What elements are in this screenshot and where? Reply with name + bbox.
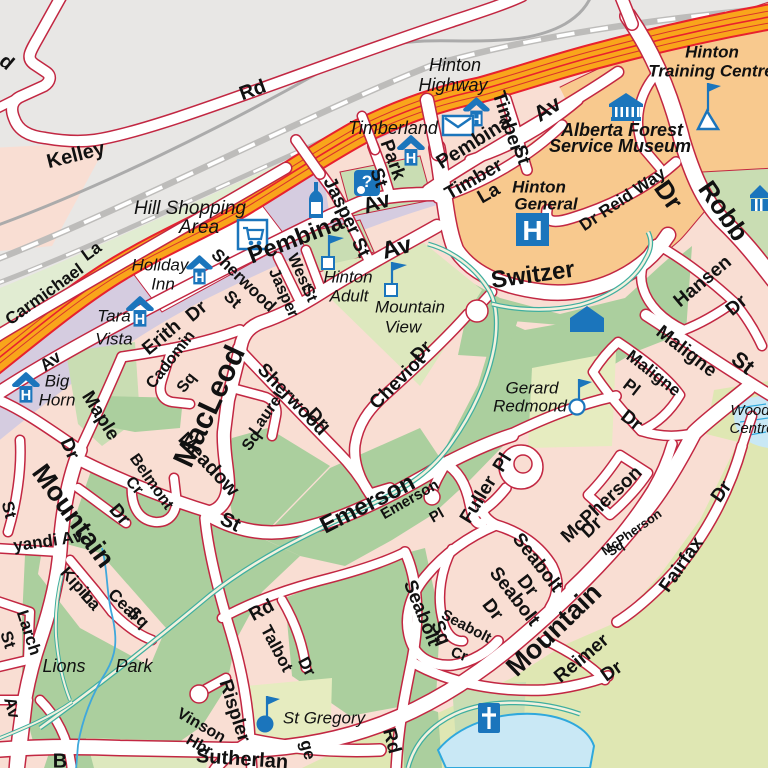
svg-text:Big: Big	[45, 371, 70, 390]
svg-text:H: H	[135, 312, 146, 328]
svg-text:Park: Park	[115, 656, 153, 676]
svg-text:Vista: Vista	[95, 329, 133, 348]
svg-text:H: H	[21, 388, 32, 404]
svg-text:H: H	[522, 215, 542, 246]
svg-text:Hinton: Hinton	[685, 42, 739, 61]
svg-text:Centre: Centre	[729, 420, 768, 437]
svg-text:Hill Shopping: Hill Shopping	[134, 198, 246, 219]
svg-text:Gerard: Gerard	[506, 378, 559, 397]
svg-text:H: H	[194, 269, 204, 285]
svg-text:Hinton: Hinton	[429, 55, 481, 75]
svg-text:Service Museum: Service Museum	[549, 136, 691, 156]
svg-text:Horn: Horn	[39, 390, 76, 409]
svg-text:Lions: Lions	[42, 656, 85, 676]
svg-text:Highway: Highway	[418, 75, 488, 95]
svg-text:Inn: Inn	[151, 274, 175, 293]
svg-text:H: H	[406, 151, 417, 167]
svg-text:General: General	[514, 194, 579, 213]
svg-text:Hinton: Hinton	[323, 267, 372, 286]
svg-text:Area: Area	[178, 217, 219, 238]
svg-text:B: B	[53, 750, 67, 768]
svg-text:Tara: Tara	[97, 306, 130, 325]
svg-text:Adult: Adult	[329, 286, 370, 305]
svg-text:Mountain: Mountain	[375, 297, 445, 316]
svg-text:Wood: Wood	[730, 402, 768, 419]
svg-text:View: View	[385, 317, 423, 336]
svg-text:Holiday: Holiday	[132, 255, 190, 274]
svg-text:Timberland: Timberland	[348, 118, 439, 138]
svg-text:St Gregory: St Gregory	[283, 708, 367, 727]
svg-text:Redmond: Redmond	[493, 396, 567, 415]
svg-text:Training Centre: Training Centre	[648, 61, 768, 80]
